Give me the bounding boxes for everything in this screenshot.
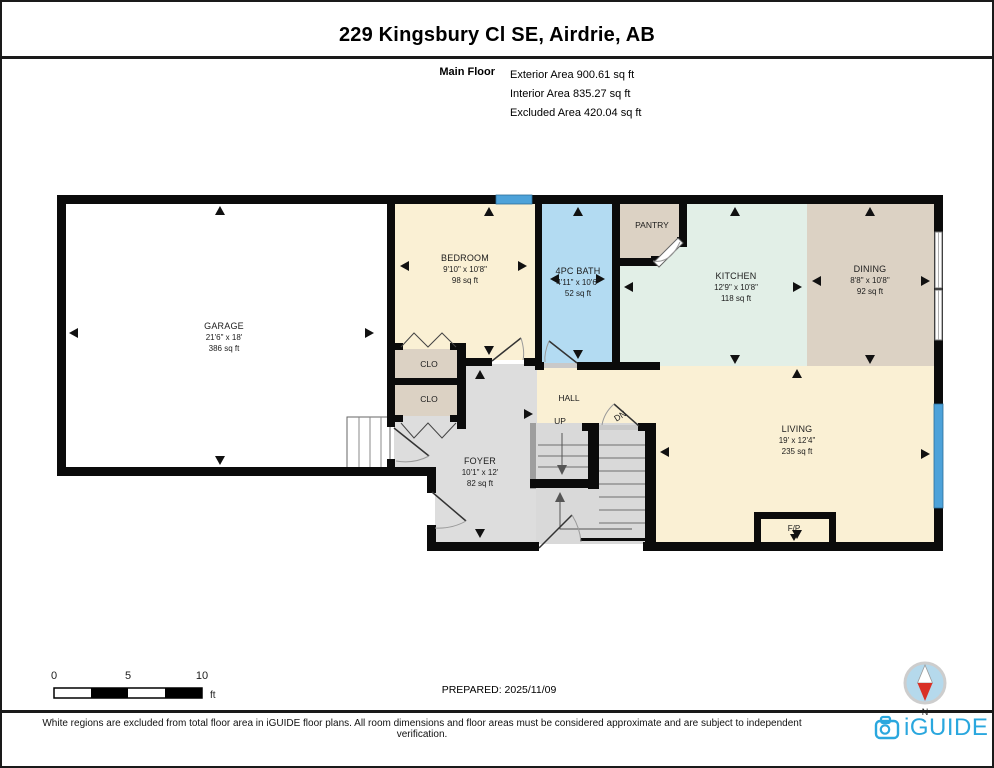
- closet-1-label: CLO: [420, 359, 438, 369]
- compass: N: [905, 663, 945, 717]
- bedroom-area: 98 sq ft: [452, 276, 479, 285]
- bath-name: 4PC BATH: [556, 266, 601, 276]
- pantry-name: PANTRY: [635, 220, 669, 230]
- scale-unit: ft: [210, 690, 216, 701]
- disclaimer-text: White regions are excluded from total fl…: [17, 718, 827, 740]
- kitchen-area: 118 sq ft: [721, 294, 752, 303]
- dining-dims: 8'8" x 10'8": [850, 276, 890, 285]
- window-top: [496, 195, 532, 204]
- prepared-date: PREPARED: 2025/11/09: [349, 684, 649, 696]
- foyer-name: FOYER: [464, 456, 496, 466]
- floorplan-page: 229 Kingsbury Cl SE, Airdrie, AB Main Fl…: [0, 0, 994, 768]
- floor-plan: F/P: [2, 2, 994, 768]
- window-living: [934, 404, 943, 508]
- kitchen-dims: 12'9" x 10'8": [714, 283, 758, 292]
- living-name: LIVING: [782, 424, 813, 434]
- scale-tick-0: 0: [51, 670, 57, 682]
- foyer-dims: 10'1" x 12': [462, 468, 499, 477]
- scale-tick-5: 5: [125, 670, 131, 682]
- living-area: 235 sq ft: [782, 447, 813, 456]
- foyer-area: 82 sq ft: [467, 479, 494, 488]
- dining-area: 92 sq ft: [857, 287, 884, 296]
- bath-dims: 4'11" x 10'6": [556, 278, 599, 287]
- dining-name: DINING: [854, 264, 887, 274]
- bath-area: 52 sq ft: [565, 289, 592, 298]
- garage-name: GARAGE: [204, 321, 244, 331]
- bedroom-dims: 9'10" x 10'8": [443, 265, 487, 274]
- bedroom-name: BEDROOM: [441, 253, 489, 263]
- garage-dims: 21'6" x 18': [206, 333, 243, 342]
- stairs-up-label: UP: [554, 416, 566, 426]
- garage-area: 386 sq ft: [209, 344, 240, 353]
- hall-label: HALL: [558, 393, 580, 403]
- kitchen-name: KITCHEN: [716, 271, 757, 281]
- closet-2-label: CLO: [420, 394, 438, 404]
- footer-divider: [2, 710, 992, 713]
- garage-steps: [347, 417, 390, 473]
- brand-name: iGUIDE: [904, 714, 988, 742]
- brand-logo: iGUIDE: [873, 714, 988, 742]
- living-dims: 19' x 12'4": [779, 436, 816, 445]
- scale-bar: 0 5 10 ft: [51, 670, 216, 701]
- scale-tick-10: 10: [196, 670, 208, 682]
- room-dining: [807, 202, 935, 368]
- iguide-camera-icon: [873, 715, 901, 741]
